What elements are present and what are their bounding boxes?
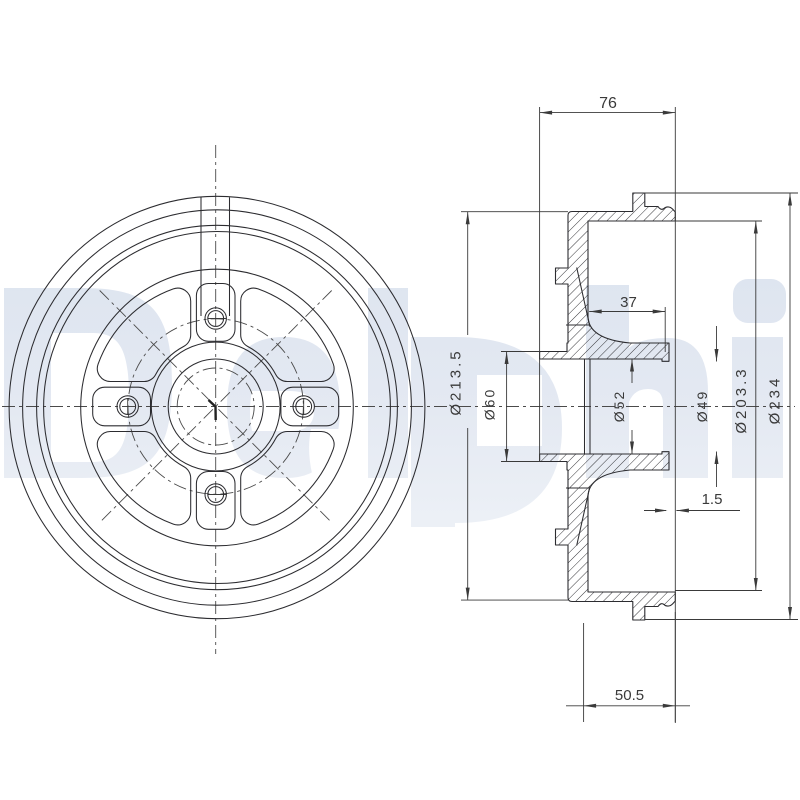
svg-text:Ø234: Ø234 (767, 376, 784, 425)
svg-text:76: 76 (599, 95, 617, 112)
svg-text:Ø60: Ø60 (482, 388, 498, 420)
svg-text:1.5: 1.5 (702, 491, 723, 508)
svg-text:50.5: 50.5 (615, 687, 644, 704)
svg-text:Ø49: Ø49 (694, 390, 710, 422)
svg-text:Ø203.3: Ø203.3 (733, 366, 750, 433)
svg-text:Ø213.5: Ø213.5 (448, 348, 465, 415)
svg-text:37: 37 (620, 294, 637, 311)
svg-text:Ø52: Ø52 (611, 390, 627, 422)
